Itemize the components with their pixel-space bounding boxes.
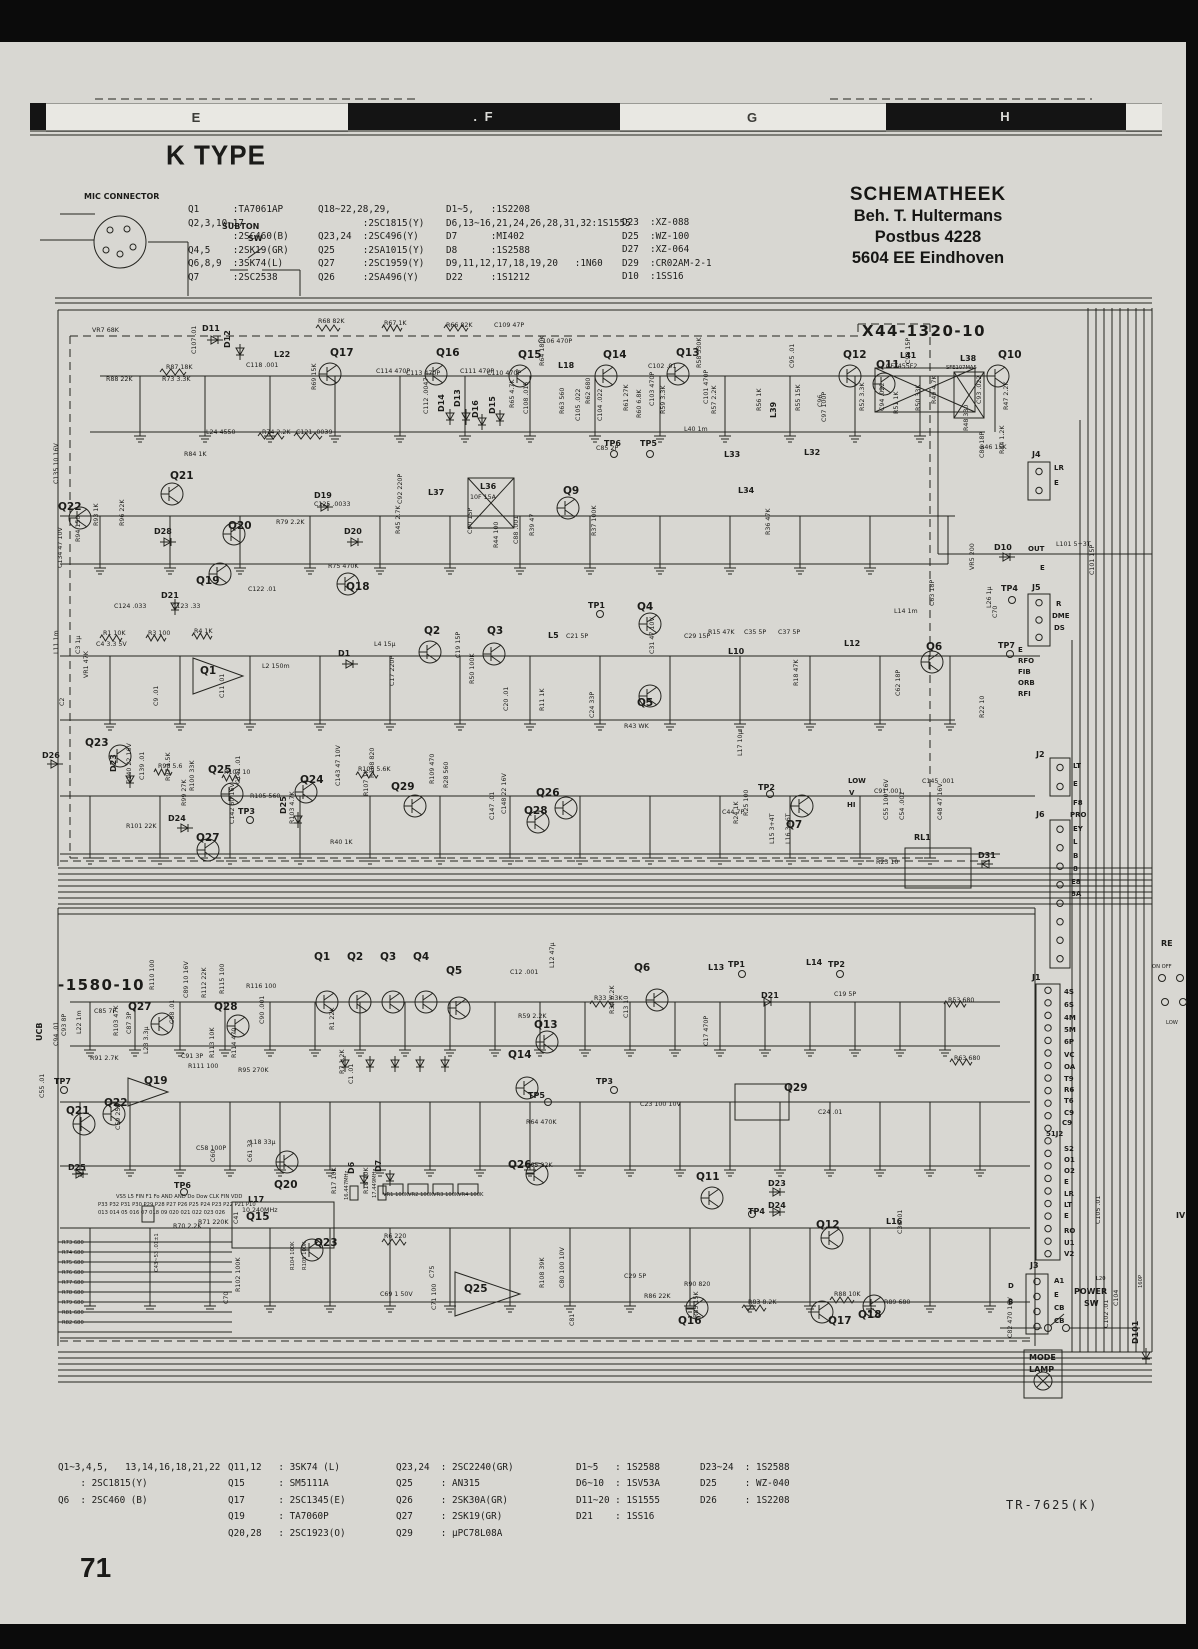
connector-body: [1050, 820, 1070, 968]
component-label: CB: [1054, 1304, 1064, 1312]
component-label: R50 33K: [915, 384, 922, 411]
component-label: R100 33K: [189, 760, 196, 791]
component-label: C35 5P: [744, 629, 766, 636]
component-label: L18: [558, 361, 575, 370]
component-label: R52 3.3K: [859, 382, 866, 411]
component-label: TP1: [588, 601, 605, 610]
testpoint-icon: [1063, 1325, 1070, 1332]
component-label: L: [1073, 838, 1078, 846]
diode-icon: [207, 336, 223, 344]
component-label: J5: [1031, 583, 1041, 592]
component-label: C91 3P: [181, 1053, 203, 1060]
component-label: Q13: [534, 1019, 558, 1031]
testpoint-icon: [837, 971, 844, 978]
component-label: D15: [488, 396, 497, 414]
component-label: Q2: [347, 951, 363, 963]
diode-icon: [47, 760, 63, 768]
parts-list-line: D11~20 : 1S1555: [576, 1493, 660, 1509]
parts-list-line: D26 : 1S2208: [700, 1493, 790, 1509]
component-label: C108 .015: [523, 382, 530, 414]
connector-pin: [1057, 826, 1063, 832]
component-label: R57 2.2K: [711, 385, 718, 414]
ground-symbol: [354, 1045, 366, 1056]
component-label: R90 820: [684, 1281, 710, 1288]
testpoint-icon: [1159, 975, 1166, 982]
component-label: MIC CONNECTOR: [84, 192, 159, 201]
component-label: C31 47 10V: [649, 617, 656, 654]
component-label: EY: [1073, 825, 1084, 833]
component-label: HI: [847, 801, 855, 809]
component-label: E: [1018, 646, 1023, 654]
component-label: R77 680: [62, 1280, 84, 1286]
ground-symbol: [504, 853, 516, 864]
component-label: VS5 L5 FIN F1 Fo AND AND Do Dow CLK FIN …: [116, 1194, 242, 1200]
component-label: CFT455F2: [886, 363, 917, 370]
component-label: L20: [1096, 1276, 1106, 1282]
component-label: Q4: [413, 951, 429, 963]
component-label: L17 10µ: [737, 730, 744, 756]
component-label: C141 .01: [235, 756, 242, 784]
component-label: D23: [109, 754, 118, 772]
component-label: C23 100 10V: [640, 1101, 681, 1108]
component-label: C88 .01: [169, 1000, 176, 1024]
component-label: R58 330K: [696, 337, 703, 368]
component-label: OUT: [1028, 545, 1045, 553]
connector-pin: [1045, 1075, 1051, 1081]
component-label: Q16: [436, 347, 460, 359]
component-label: Q1: [314, 951, 330, 963]
component-label: R104 100K: [290, 1241, 296, 1270]
ground-symbol: [514, 563, 526, 574]
component-label: D25: [279, 796, 288, 814]
component-label: R79 2.2K: [276, 519, 305, 526]
component-label: R93 1K: [93, 503, 100, 526]
ground-symbol: [804, 719, 816, 730]
ground-symbol: [324, 1301, 336, 1312]
connector-pin: [1045, 1012, 1051, 1018]
ground-symbol: [944, 719, 956, 730]
component-label: Q14: [508, 1049, 532, 1061]
diode-icon: [446, 409, 454, 425]
component-label: C147 .01: [489, 792, 496, 820]
component-label: L4 15µ: [374, 641, 396, 648]
component-label: 4M: [1064, 1014, 1076, 1022]
component-label: VR1 47K: [83, 650, 90, 678]
component-label: C87 3P: [126, 1012, 133, 1034]
component-label: SUBTON: [222, 222, 259, 231]
ground-symbol: [804, 1301, 816, 1312]
component-label: C17 220P: [389, 656, 396, 686]
diode-icon: [391, 1056, 399, 1072]
ground-symbol: [874, 719, 886, 730]
component-label: C142 60 16V: [229, 783, 236, 824]
ground-symbol: [204, 1301, 216, 1312]
component-label: 6P: [1064, 1038, 1074, 1046]
component-label: R62 680: [585, 378, 592, 404]
component-label: R106 5.6K: [358, 766, 391, 773]
ground-symbol: [584, 563, 596, 574]
component-label: L34: [738, 486, 755, 495]
component-label: L10: [728, 647, 745, 656]
parts-list-bottom-q1: Q1~3,4,5, 13,14,16,18,21,22 : 2SC1815(Y)…: [58, 1460, 220, 1509]
component-label: C94 .01: [53, 1022, 60, 1046]
parts-list-line: D21 : 1SS16: [576, 1509, 660, 1525]
ground-symbol: [94, 563, 106, 574]
ground-symbol: [924, 853, 936, 864]
component-label: R102 100K: [235, 1257, 242, 1292]
component-label: D21: [761, 991, 779, 1000]
connector-pin: [1057, 882, 1063, 888]
component-label: UCB: [35, 1023, 44, 1041]
component-label: C90 .001: [259, 996, 266, 1024]
connector-pin: [1045, 1113, 1051, 1119]
component-label: Q4: [637, 601, 653, 613]
component-label: C113 470P: [406, 370, 440, 377]
component-label: C121 .0039: [296, 429, 332, 436]
connector-pin: [1036, 634, 1042, 640]
diode-icon: [462, 409, 470, 425]
component-label: C105 .01: [1095, 1196, 1102, 1224]
component-label: C9: [1062, 1119, 1072, 1127]
component-label: D1: [338, 649, 351, 658]
component-label: E: [1054, 479, 1059, 487]
component-label: C36 .01: [897, 1210, 904, 1234]
component-label: L39: [769, 401, 778, 418]
component-label: R: [1056, 600, 1062, 608]
component-label: L23 3.3µ: [143, 1026, 150, 1054]
component-label: R103 4.7K: [289, 791, 296, 824]
component-label: C29 5P: [624, 1273, 646, 1280]
connector-pin: [1057, 845, 1063, 851]
component-label: P33 P32 P31 P30 P29 P28 P27 P26 P25 P24 …: [98, 1202, 256, 1208]
ground-symbol: [124, 1165, 136, 1176]
connector-pin: [1045, 1062, 1051, 1068]
component-label: RE: [1161, 939, 1173, 948]
component-label: D20: [344, 527, 362, 536]
ground-symbol: [874, 1165, 886, 1176]
component-label: Q6: [634, 962, 650, 974]
diode-icon: [347, 538, 363, 546]
ground-symbol: [924, 1165, 936, 1176]
component-label: R108 820: [369, 748, 376, 778]
component-label: R73 680: [62, 1240, 84, 1246]
component-label: R37 100K: [591, 505, 598, 536]
component-label: SW: [248, 234, 263, 243]
component-label: C124 .033: [114, 603, 146, 610]
component-label: L5: [548, 631, 559, 640]
component-label: 8: [1073, 865, 1078, 873]
component-label: R61 27K: [623, 384, 630, 411]
ground-symbol: [444, 563, 456, 574]
component-label: C134 47 10V: [57, 527, 64, 568]
component-label: R105 100K: [302, 1241, 308, 1270]
connector-pin: [1045, 1000, 1051, 1006]
transistor-icon: [557, 499, 575, 517]
component-label: Q14: [603, 349, 627, 361]
ground-symbol: [774, 1165, 786, 1176]
ground-symbol: [669, 1045, 681, 1056]
component-label: C12 .001: [510, 969, 538, 976]
component-label: LT: [1073, 762, 1081, 770]
ground-symbol: [714, 853, 726, 864]
component-label: R83 8.2K: [748, 1299, 777, 1306]
connector-circle: [107, 227, 113, 233]
testpoint-icon: [1180, 999, 1187, 1006]
component-label: C103 470P: [649, 372, 656, 406]
testpoint-icon: [247, 817, 254, 824]
component-label: L12: [844, 639, 860, 648]
component-label: R23 10: [876, 859, 898, 866]
component-label: R1 10K: [103, 630, 126, 637]
component-label: 10.240MHz: [242, 1207, 278, 1214]
parts-list-line: D25 : WZ-040: [700, 1476, 790, 1492]
component-label: E: [1073, 780, 1078, 788]
component-label: C125 .0033: [314, 501, 350, 508]
component-label: C86 18P: [979, 432, 986, 458]
component-label: C109 47P: [494, 322, 524, 329]
testpoint-icon: [61, 1087, 68, 1094]
component-label: R75 680: [62, 1260, 84, 1266]
component-label: C95 .01: [789, 344, 796, 368]
component-label: LR: [1064, 1190, 1074, 1198]
component-label: R82 680: [62, 1320, 84, 1326]
connector-pin: [1036, 617, 1042, 623]
component-label: R74 680: [62, 1250, 84, 1256]
parts-list-line: Q19 : TA7060P: [228, 1509, 346, 1525]
component-label: C102 .01: [648, 363, 676, 370]
component-label: C81: [569, 1314, 576, 1326]
component-label: Q18: [858, 1309, 882, 1321]
component-label: R114 470: [231, 1028, 238, 1058]
component-label: C80 100 10V: [559, 1247, 566, 1288]
transistor-icon: [319, 365, 337, 383]
component-label: ON OFF: [1152, 964, 1172, 970]
component-label: C20 .01: [503, 687, 510, 711]
component-label: R59 3.3K: [660, 385, 667, 414]
diode-icon: [496, 410, 504, 426]
ground-symbol: [719, 431, 731, 442]
ground-symbol: [294, 853, 306, 864]
connector-pin: [1045, 1213, 1051, 1219]
transistor-icon: [151, 1015, 169, 1033]
ground-symbol: [304, 563, 316, 574]
component-label: D26: [42, 751, 60, 760]
component-label: R79 680: [62, 1300, 84, 1306]
component-label: VC: [1064, 1051, 1075, 1059]
parts-list-bottom-q3: Q23,24 : 2SC2240(GR)Q25 : AN315Q26 : 2SK…: [396, 1460, 514, 1542]
ground-symbol: [579, 1045, 591, 1056]
ground-symbol: [724, 1165, 736, 1176]
connector-pin: [1045, 1238, 1051, 1244]
transistor-icon: [419, 643, 437, 661]
component-label: FIB: [1018, 668, 1031, 676]
component-label: J2: [1035, 750, 1045, 759]
component-label: LAMP: [1029, 1365, 1054, 1374]
component-label: D14: [437, 394, 446, 412]
component-label: R105 560: [250, 793, 280, 800]
component-label: C122 .01: [248, 586, 276, 593]
ground-symbol: [864, 563, 876, 574]
component-label: C148 22 16V: [501, 773, 508, 814]
connector-pin: [1045, 1150, 1051, 1156]
component-label: C102 .01: [1103, 1300, 1110, 1328]
component-label: C9: [1064, 1109, 1074, 1117]
component-label: Q21: [66, 1105, 90, 1117]
component-label: C4 3.3 5V: [96, 641, 127, 648]
component-label: C97 100P: [821, 392, 828, 422]
diode-icon: [366, 1056, 374, 1072]
component-label: Q10: [998, 349, 1022, 361]
component-label: R67 1K: [384, 320, 407, 327]
component-label: Q27: [128, 1001, 152, 1013]
parts-list-line: Q20,28 : 2SC1923(O): [228, 1526, 346, 1542]
transistor-icon: [276, 1153, 294, 1171]
component-label: R34 6.2K: [609, 985, 616, 1014]
wire: [248, 248, 262, 258]
component-label: DME: [1052, 612, 1070, 620]
component-label: Q22: [58, 501, 82, 513]
component-label: L101 5+3T: [1056, 541, 1091, 548]
ground-symbol: [84, 853, 96, 864]
connector-pin: [1057, 937, 1063, 943]
component-label: R64 470K: [526, 1119, 557, 1126]
component-label: L22 1m: [76, 1010, 83, 1034]
filter-icon: [875, 368, 975, 412]
component-label: C101 470P: [703, 370, 710, 404]
ground-symbol: [244, 719, 256, 730]
component-label: R59 2.2K: [518, 1013, 547, 1020]
component-label: LOW: [1166, 1020, 1178, 1026]
component-label: C70: [992, 606, 999, 618]
component-label: Q21: [170, 470, 194, 482]
testpoint-icon: [739, 971, 746, 978]
component-label: D101: [1131, 1320, 1140, 1344]
diode-icon: [160, 538, 176, 546]
ground-symbol: [104, 719, 116, 730]
ground-symbol: [134, 431, 146, 442]
ground-symbol: [664, 719, 676, 730]
connector-pin: [1045, 1100, 1051, 1106]
connector-body: [1026, 1274, 1048, 1334]
component-label: Q5: [446, 965, 462, 977]
ground-symbol: [504, 1301, 516, 1312]
component-label: S2: [1064, 1145, 1074, 1153]
component-label: A1: [1054, 1277, 1064, 1285]
component-label: T6: [1064, 1097, 1074, 1105]
component-label: E: [1040, 564, 1045, 572]
component-label: SW: [1084, 1299, 1099, 1308]
ground-symbol: [224, 1165, 236, 1176]
ground-symbol: [974, 1165, 986, 1176]
ground-symbol: [924, 1301, 936, 1312]
component-label: C55 100 16V: [883, 779, 890, 820]
component-label: C24 .01: [818, 1109, 842, 1116]
component-label: TP2: [828, 960, 845, 969]
connector-pin: [1045, 1087, 1051, 1093]
ground-symbol: [784, 853, 796, 864]
ground-symbol: [234, 563, 246, 574]
parts-list-line: Q29 : µPC78L08A: [396, 1526, 514, 1542]
ground-symbol: [624, 1165, 636, 1176]
component-label: C110 470P: [487, 370, 521, 377]
component-label: C75: [429, 1266, 436, 1278]
ground-symbol: [624, 1045, 636, 1056]
component-label: Q23: [85, 737, 109, 749]
component-label: R44 1.2K: [999, 425, 1006, 454]
ground-symbol: [794, 563, 806, 574]
component-label: D10: [994, 543, 1012, 552]
ground-symbol: [384, 1301, 396, 1312]
component-label: T9: [1064, 1075, 1074, 1083]
component-label: R44 100: [493, 522, 500, 548]
ground-symbol: [854, 853, 866, 864]
component-label: Q6: [926, 641, 942, 653]
ground-symbol: [174, 719, 186, 730]
component-label: Q19: [144, 1075, 168, 1087]
component-label: OA: [1064, 1063, 1076, 1071]
ground-symbol: [154, 853, 166, 864]
component-label: Q20: [274, 1179, 298, 1191]
component-label: 4S: [1064, 988, 1074, 996]
diode-icon: [236, 344, 244, 360]
component-label: Q12: [816, 1219, 840, 1231]
component-label: Q17: [330, 347, 354, 359]
component-label: C94 .022: [879, 383, 886, 411]
component-label: C2: [59, 698, 66, 706]
component-label: C55 .01: [39, 1074, 46, 1098]
component-label: O2: [1064, 1167, 1075, 1175]
parts-list-line: D6~10 : 1SV53A: [576, 1476, 660, 1492]
component-label: L18 33µ: [250, 1139, 276, 1146]
connector-pin: [1045, 1188, 1051, 1194]
component-label: TP4: [1001, 584, 1018, 593]
model-number: TR-7625(K): [1006, 1498, 1098, 1512]
ground-symbol: [564, 1301, 576, 1312]
component-label: L32: [804, 448, 820, 457]
component-label: R81 680: [62, 1310, 84, 1316]
component-label: R51 1K: [893, 391, 900, 414]
transistor-icon: [821, 1229, 839, 1247]
component-label: C88 .001: [513, 516, 520, 544]
component-label: Q18: [346, 581, 370, 593]
component-label: D21: [161, 591, 179, 600]
component-label: L38: [960, 354, 977, 363]
ground-symbol: [644, 853, 656, 864]
component-label: C58 100P: [196, 1145, 226, 1152]
component-label: L14 1m: [894, 608, 918, 615]
component-label: TP5: [528, 1091, 545, 1100]
ground-symbol: [444, 1301, 456, 1312]
component-label: R66 82K: [446, 322, 473, 329]
component-label: R101 22K: [126, 823, 157, 830]
ground-symbol: [474, 1165, 486, 1176]
component-label: R71 220K: [198, 1219, 229, 1226]
component-label: C19 15P: [455, 632, 462, 658]
component-label: L22: [274, 350, 290, 359]
connector-body: [1028, 594, 1050, 646]
connector-pin: [1045, 1025, 1051, 1031]
component-label: D: [1008, 1282, 1014, 1290]
component-label: R88 10K: [834, 1291, 861, 1298]
component-label: L33: [724, 450, 740, 459]
parts-list-line: Q25 : AN315: [396, 1476, 514, 1492]
component-label: C54 .001: [899, 792, 906, 820]
ground-symbol: [84, 1301, 96, 1312]
ground-symbol: [849, 1045, 861, 1056]
component-label: VR3 100K: [433, 1192, 459, 1198]
component-label: Q1: [200, 665, 216, 677]
ground-symbol: [524, 719, 536, 730]
